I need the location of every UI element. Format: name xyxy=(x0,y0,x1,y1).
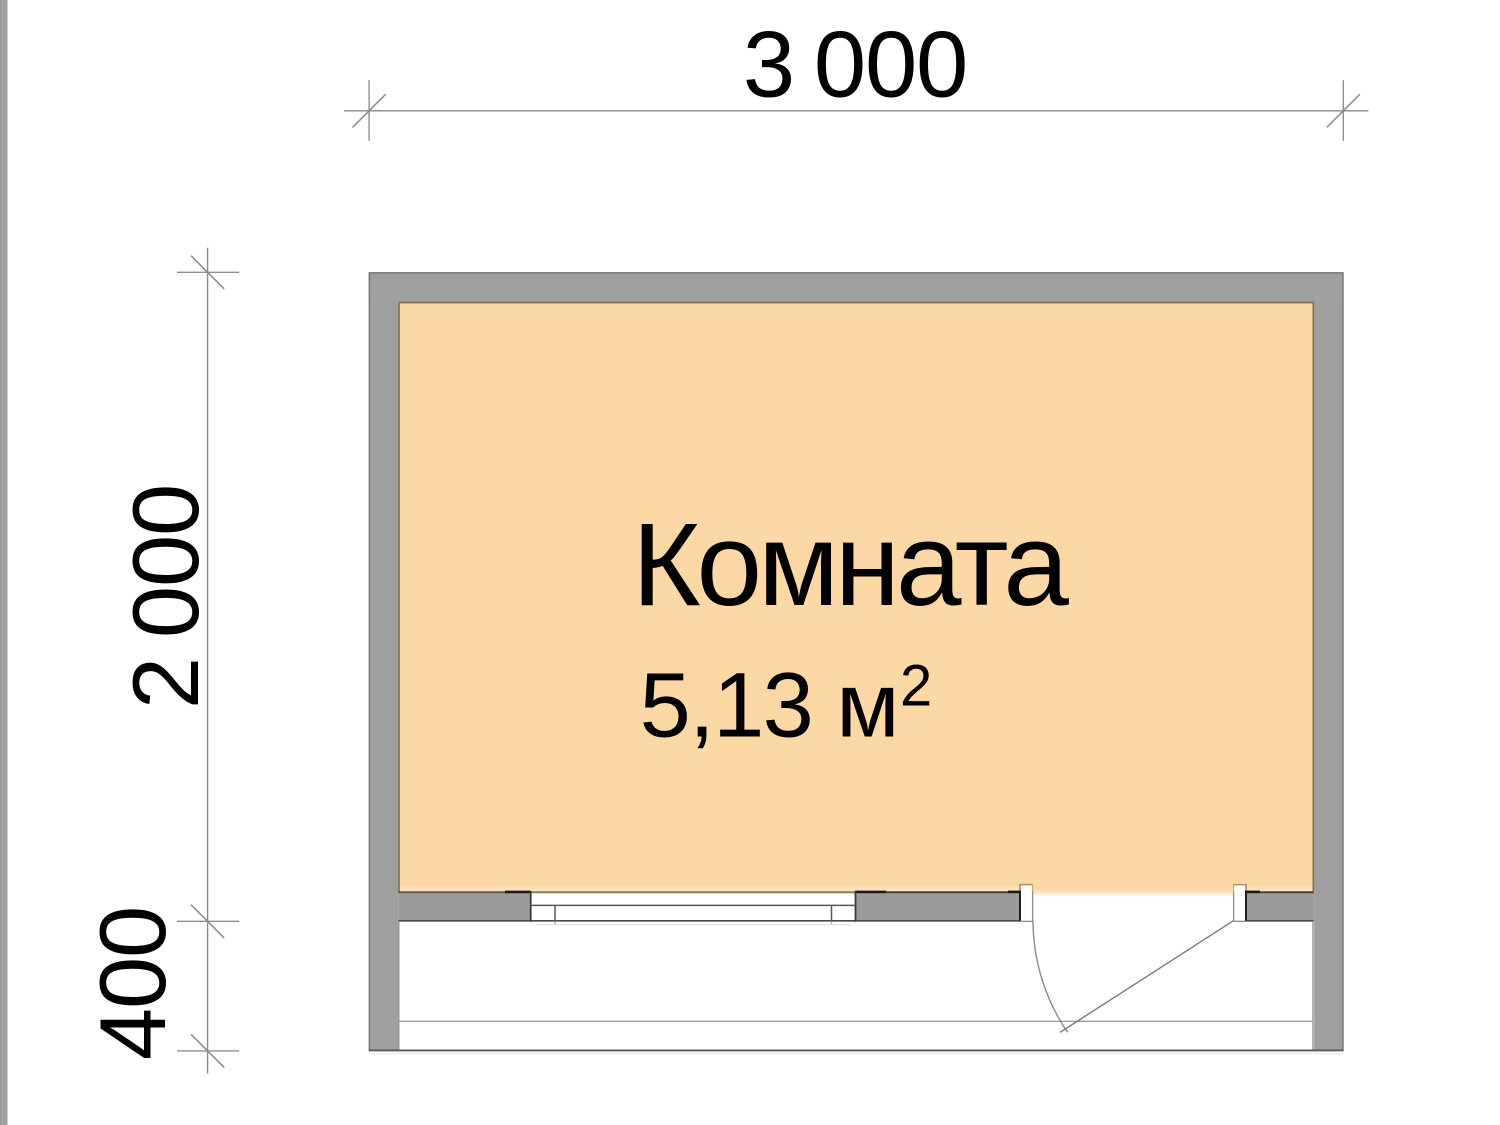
svg-text:2: 2 xyxy=(900,653,932,718)
svg-text:2 000: 2 000 xyxy=(113,485,218,709)
svg-text:Комната: Комната xyxy=(632,499,1069,631)
svg-text:5,13 м: 5,13 м xyxy=(640,655,898,757)
svg-text:3 000: 3 000 xyxy=(743,11,967,116)
svg-text:400: 400 xyxy=(80,907,185,1060)
